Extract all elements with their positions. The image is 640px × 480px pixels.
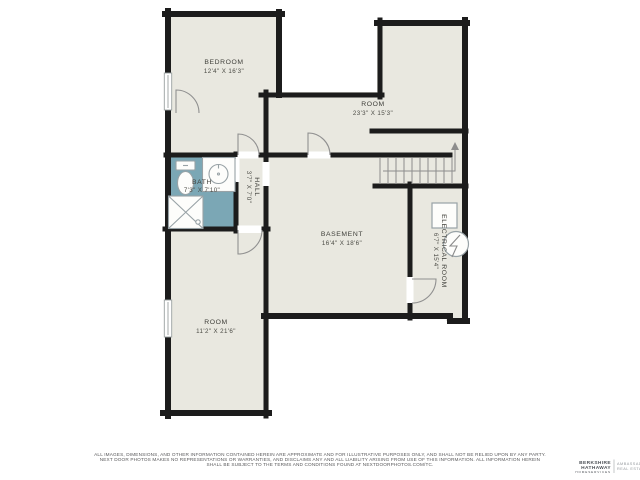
floorplan-canvas: BEDROOM 12'4" X 16'3" ROOM 23'3" X 15'3"… xyxy=(0,0,640,480)
electrical-room-label: ELECTRICAL ROOM xyxy=(440,214,447,288)
hall-top-door-opening xyxy=(238,152,259,159)
hall-dims: 3'7" X 7'0" xyxy=(245,171,252,204)
shower-drain-icon xyxy=(196,220,200,224)
basement-door-opening xyxy=(263,162,270,186)
top-room-label: ROOM xyxy=(361,101,385,108)
room-door-opening xyxy=(308,152,331,159)
bath-dims: 7'3" X 7'10" xyxy=(184,187,220,194)
sink-drain-icon xyxy=(218,173,220,175)
hall-bottom-door-opening xyxy=(238,226,262,234)
electrical-door-opening xyxy=(407,277,414,303)
logo-division-line-1: AMBASSADOR xyxy=(617,462,640,466)
logo-division-line-2: REAL ESTATE xyxy=(617,467,640,471)
bedroom-dims: 12'4" X 16'3" xyxy=(204,68,244,75)
closet-vestibule-floor xyxy=(165,95,269,158)
basement-label: BASEMENT xyxy=(321,231,363,238)
bedroom-label: BEDROOM xyxy=(204,59,243,66)
bath-label: BATH xyxy=(192,179,212,186)
logo-brand-line-3: HOMESERVICES xyxy=(575,470,611,474)
electrical-room-dims: 6'7" X 15'4" xyxy=(432,233,439,269)
top-room-dims: 23'3" X 15'3" xyxy=(353,110,393,117)
floorplan-page: BEDROOM 12'4" X 16'3" ROOM 23'3" X 15'3"… xyxy=(0,0,640,480)
basement-dims: 16'4" X 18'6" xyxy=(322,240,362,247)
bottom-room-label: ROOM xyxy=(204,319,228,326)
disclaimer-line-3: SHALL BE SUBJECT TO THE TERMS AND CONDIT… xyxy=(207,462,434,467)
bottom-room-dims: 11'2" X 21'6" xyxy=(196,328,236,335)
bedroom-floor xyxy=(165,11,282,97)
hall-label: HALL xyxy=(253,177,260,196)
